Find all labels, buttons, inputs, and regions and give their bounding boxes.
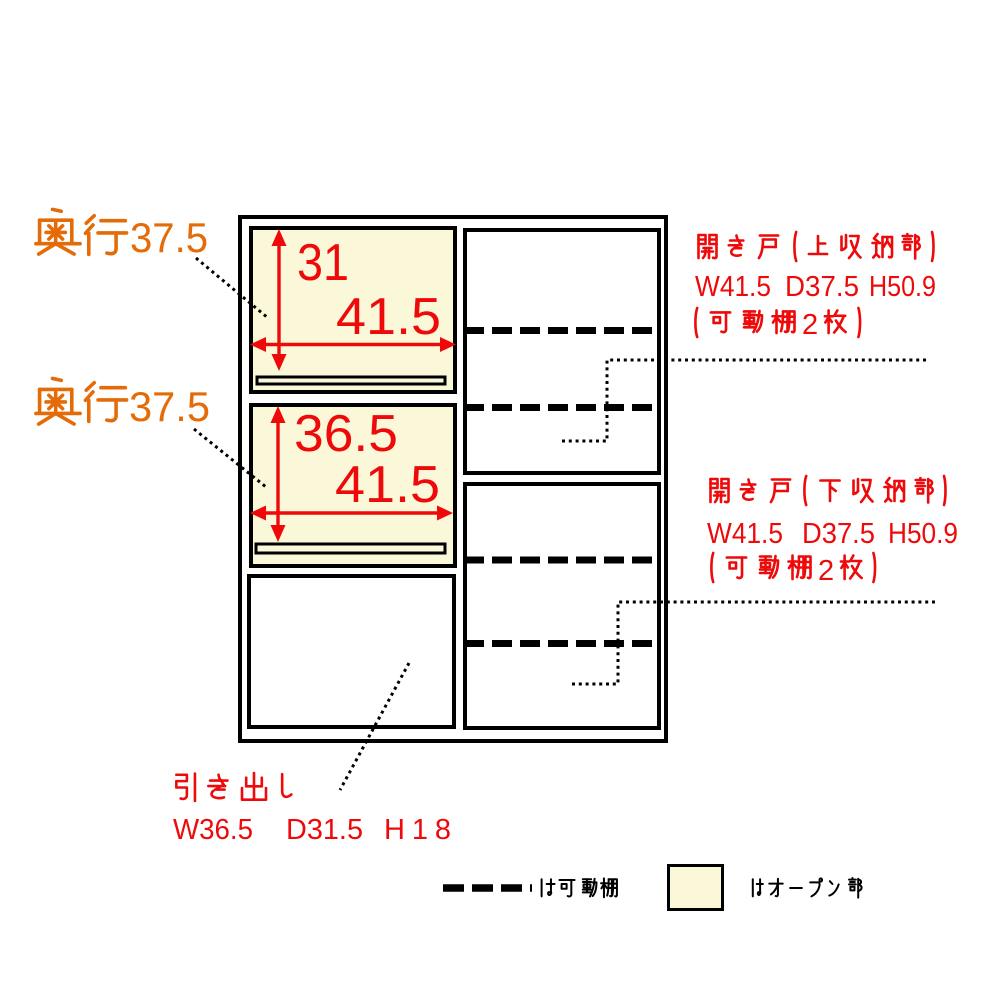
- svg-text:W41.5: W41.5: [707, 518, 783, 550]
- svg-text:41.5: 41.5: [336, 288, 441, 346]
- svg-text:D37.5: D37.5: [802, 518, 875, 550]
- svg-text:37.5: 37.5: [130, 214, 208, 261]
- svg-text:41.5: 41.5: [335, 456, 440, 514]
- svg-text:H50.9: H50.9: [888, 518, 958, 550]
- svg-text:W36.5: W36.5: [173, 814, 253, 846]
- svg-text:31: 31: [297, 234, 349, 292]
- svg-text:D31.5: D31.5: [286, 814, 363, 846]
- svg-text:2: 2: [818, 555, 834, 587]
- svg-text:37.5: 37.5: [129, 383, 210, 430]
- svg-text:H50.9: H50.9: [869, 271, 936, 303]
- svg-text:H18: H18: [384, 814, 451, 846]
- svg-text:W41.5: W41.5: [695, 271, 771, 303]
- svg-text:2: 2: [802, 309, 818, 341]
- svg-text:36.5: 36.5: [294, 405, 398, 463]
- svg-text:D37.5: D37.5: [785, 271, 859, 303]
